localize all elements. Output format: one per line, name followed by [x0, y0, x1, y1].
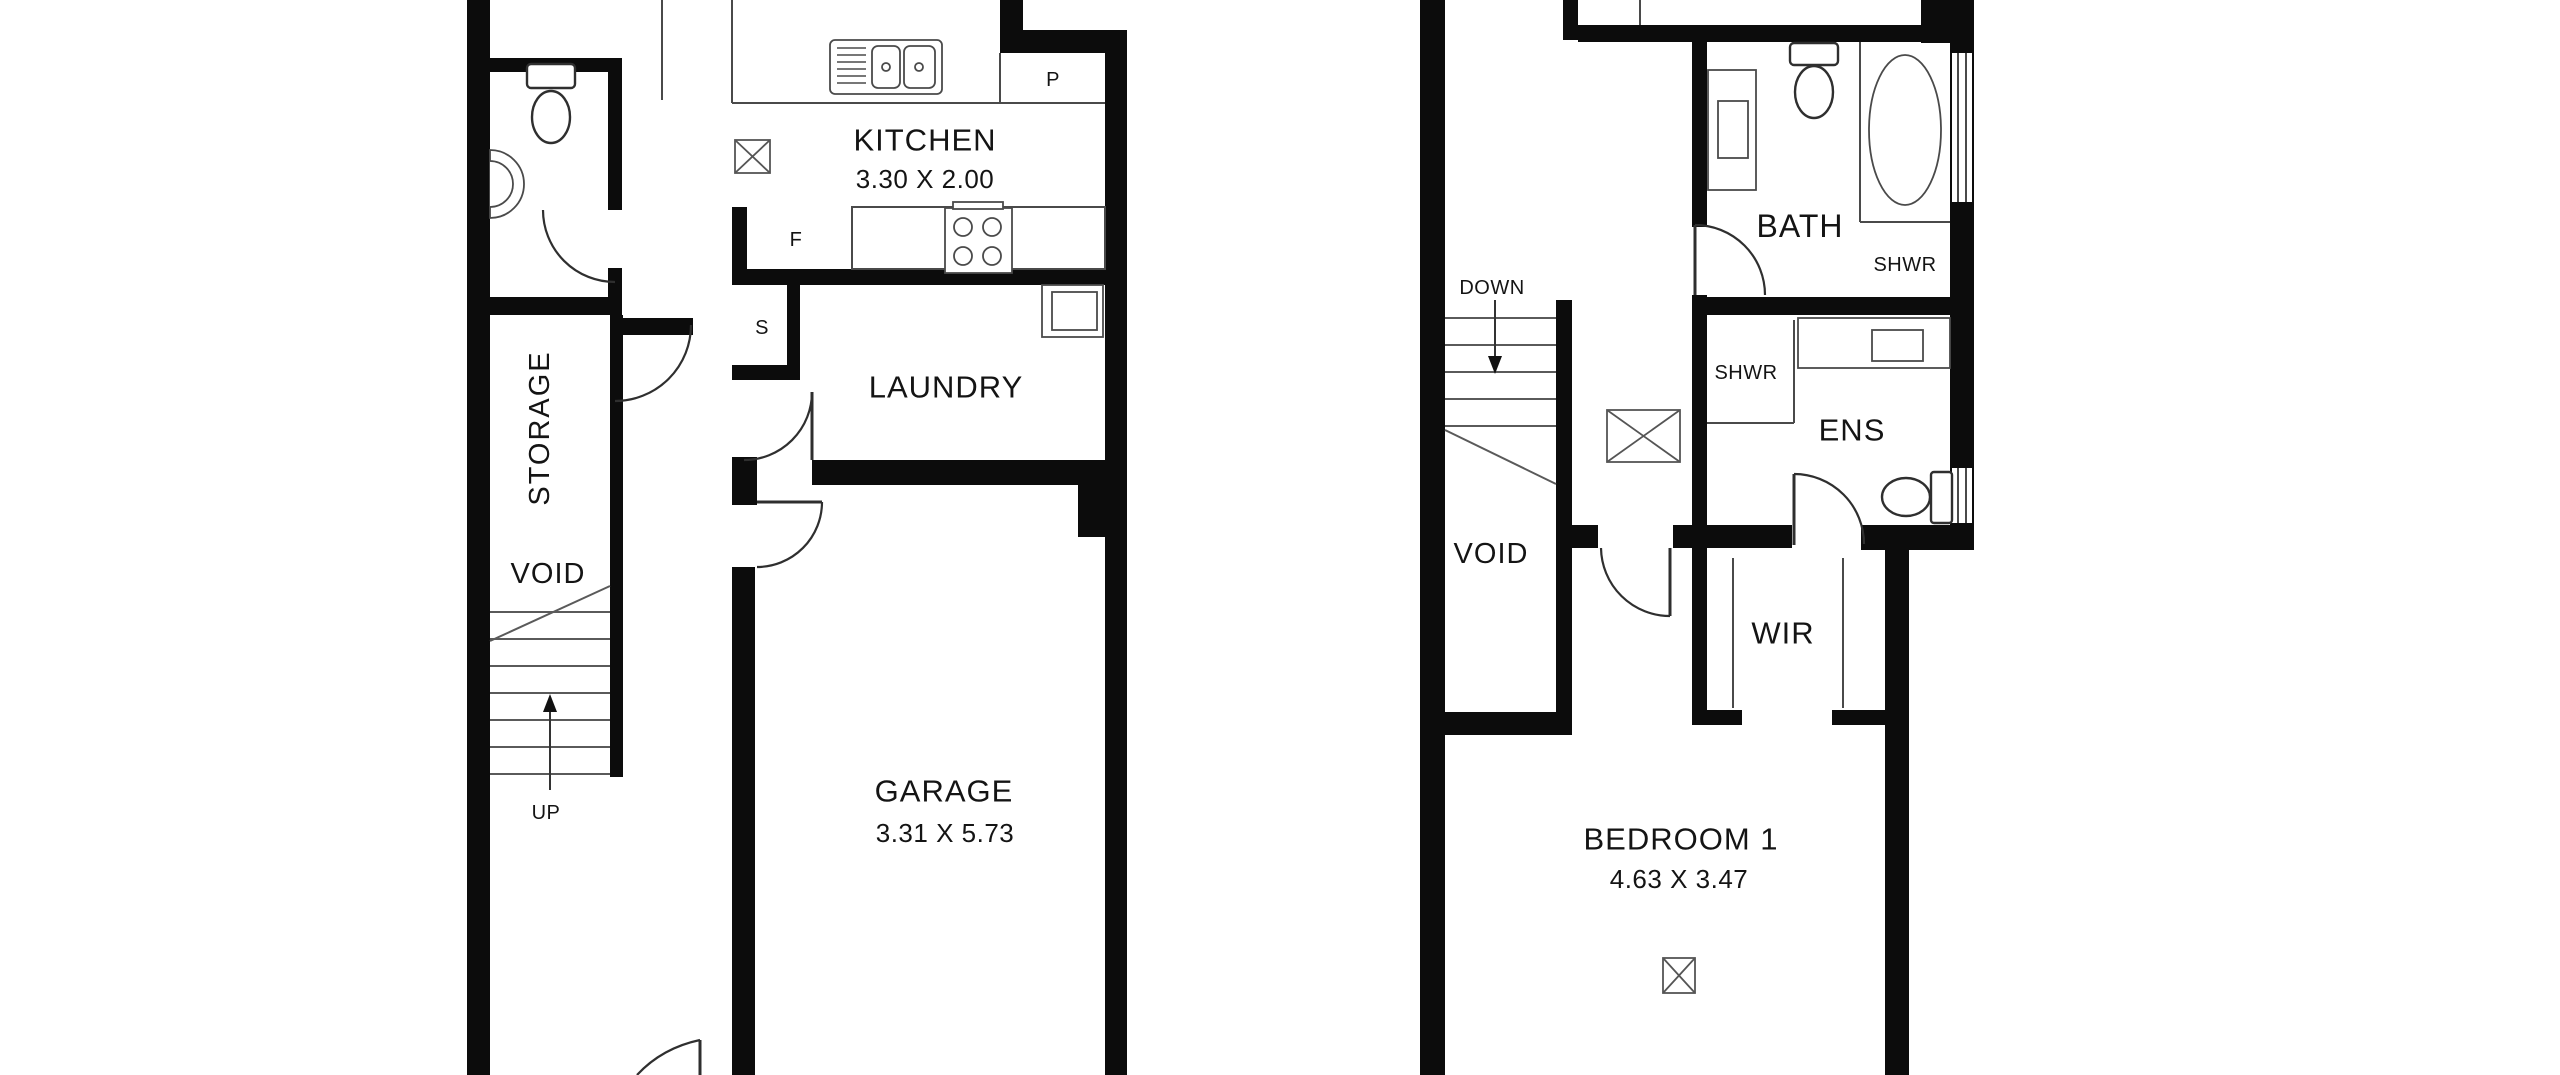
wall-right-outer	[1105, 30, 1127, 1075]
laundry-label: LAUNDRY	[869, 370, 1024, 405]
toilet-bowl	[532, 91, 570, 143]
up-arrow-head	[543, 694, 557, 712]
ground-floor-walls	[467, 0, 1127, 1075]
wall-pantry-vertical	[1000, 0, 1023, 32]
garage-dims: 3.31 X 5.73	[876, 818, 1015, 848]
ens-vanity-icon	[1798, 318, 1950, 368]
wall-top	[1578, 25, 1974, 42]
window-symbol-bedroom	[1663, 958, 1695, 993]
garage-label: GARAGE	[875, 774, 1014, 809]
ens-label: ENS	[1819, 413, 1886, 448]
wall-ens-bottom-right	[1861, 525, 1974, 550]
wall-scloset-right	[787, 285, 800, 373]
wir-label: WIR	[1751, 616, 1814, 651]
fridge-label: F	[790, 229, 803, 251]
toilet-bowl	[1795, 66, 1833, 118]
upper-floor-plan: DOWN BATH SHWR SHWR ENS VOID WIR BEDROOM…	[1420, 0, 1974, 1075]
bedroom-dims: 4.63 X 3.47	[1610, 864, 1749, 894]
wall-beddoor-jamb-right	[1673, 525, 1792, 548]
wall-right-lower	[1885, 548, 1909, 1075]
window-bath-right	[1952, 53, 1972, 202]
stove-knob-bar	[953, 202, 1003, 209]
bath-vanity-icon	[1708, 70, 1756, 190]
wall-storage-door-head	[618, 318, 693, 335]
wall-wir-bottom-right	[1832, 710, 1909, 725]
storage-door-swing	[615, 325, 691, 401]
cupboard-label: S	[755, 317, 769, 339]
void-label-ground: VOID	[511, 558, 586, 590]
kitchen-label: KITCHEN	[853, 123, 996, 158]
wall-kitchen-laundry	[732, 269, 1105, 285]
bath-shwr-label: SHWR	[1873, 254, 1936, 276]
wall-garage-corner	[1078, 483, 1127, 537]
floorplan-canvas: KITCHEN 3.30 X 2.00 P F S LAUNDRY STORAG…	[0, 0, 2560, 1075]
window-symbol-upper-hall	[1607, 410, 1680, 462]
wall-wc-right-upper	[608, 58, 622, 210]
wall-wir-bottom-left	[1692, 710, 1742, 725]
bath-toilet-icon	[1790, 43, 1838, 118]
wall-garage-left	[732, 567, 755, 1075]
window-ens-right	[1952, 468, 1972, 523]
kitchen-dims: 3.30 X 2.00	[856, 164, 995, 194]
stove-icon	[945, 202, 1012, 273]
garage-door-swing	[757, 502, 822, 567]
wc-basin-icon	[490, 150, 524, 218]
entry-door-swing	[637, 1040, 700, 1075]
stove-outline	[945, 208, 1012, 273]
laundry-door-swing	[744, 392, 812, 460]
wall-laundry-jamb	[732, 457, 757, 505]
toilet-cistern	[1931, 472, 1952, 523]
wall-stair-right-upper	[1556, 300, 1572, 735]
wall-scloset-bottom	[732, 365, 800, 380]
wall-bath-bottom	[1692, 297, 1974, 315]
toilet-cistern	[1790, 43, 1838, 65]
kitchen-sink-icon	[830, 40, 942, 94]
bedroom-door-swing	[1601, 548, 1670, 616]
bath-label: BATH	[1757, 208, 1844, 244]
bathtub-icon	[1869, 55, 1941, 205]
ground-floor-plan: KITCHEN 3.30 X 2.00 P F S LAUNDRY STORAG…	[467, 0, 1127, 1075]
wall-mid-left	[1692, 295, 1707, 725]
window-symbol-hall	[735, 140, 770, 173]
wall-wc-bottom	[488, 297, 622, 315]
wall-landing-piece	[1563, 0, 1578, 40]
laundry-tub-icon	[1042, 285, 1103, 337]
ground-floor-doors	[543, 210, 822, 1075]
wall-laundry-bottom	[812, 460, 1105, 485]
wall-void-bottom	[1420, 712, 1572, 735]
wc-toilet-icon	[527, 64, 575, 143]
stairs-down	[1445, 300, 1556, 484]
storage-label: STORAGE	[524, 350, 556, 505]
ens-door-swing	[1794, 474, 1864, 544]
stairs-up	[490, 586, 610, 790]
wall-bath-left	[1692, 37, 1707, 227]
bath-door-swing	[1695, 225, 1765, 295]
wall-left-outer	[467, 0, 490, 1075]
pantry-label: P	[1046, 69, 1060, 91]
wall-beddoor-jamb-left	[1556, 525, 1598, 548]
up-label: UP	[532, 802, 561, 824]
stair-break-line	[1445, 430, 1556, 484]
toilet-cistern	[527, 64, 575, 88]
toilet-bowl	[1882, 478, 1930, 516]
sink-drain-2	[915, 63, 923, 71]
sink-drain-1	[882, 63, 890, 71]
void-label-upper: VOID	[1454, 538, 1529, 570]
ens-shwr-label: SHWR	[1714, 362, 1777, 384]
wall-storage-right	[610, 315, 623, 777]
bedroom-label: BEDROOM 1	[1583, 822, 1778, 857]
down-label: DOWN	[1459, 277, 1524, 299]
ens-toilet-icon	[1882, 472, 1952, 523]
stair-break-line	[490, 586, 610, 641]
wall-left-outer-upper	[1420, 0, 1445, 1075]
wc-door-swing	[543, 210, 615, 282]
